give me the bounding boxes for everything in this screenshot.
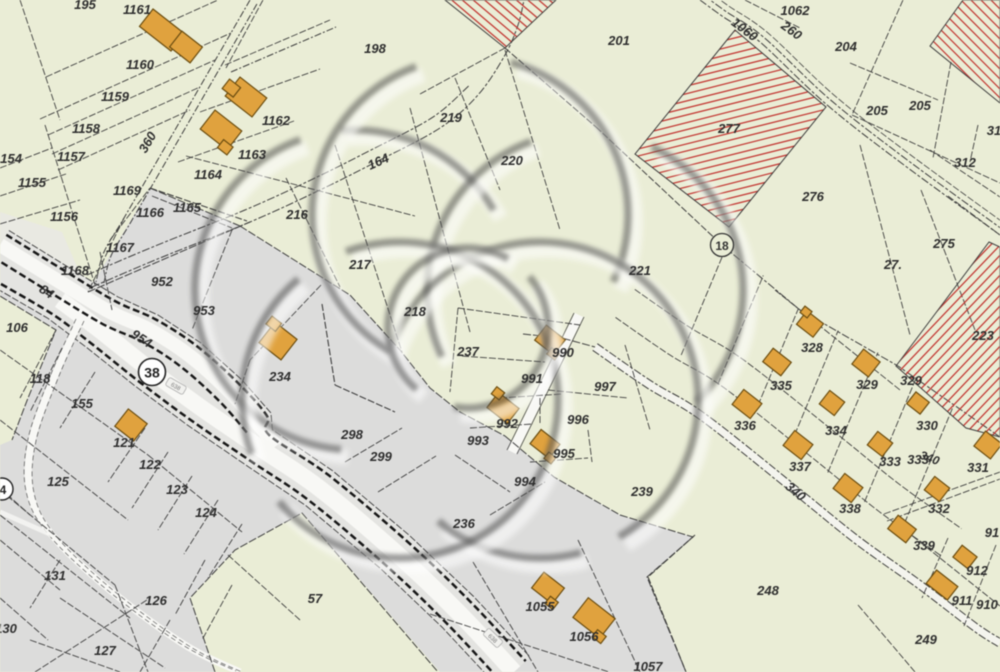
svg-text:1155: 1155	[18, 175, 47, 190]
svg-text:219: 219	[439, 110, 462, 125]
svg-text:990: 990	[552, 345, 574, 360]
svg-text:1163: 1163	[238, 147, 267, 162]
svg-text:31: 31	[987, 123, 1000, 138]
svg-text:118: 118	[30, 371, 51, 386]
svg-text:205: 205	[865, 103, 888, 118]
svg-text:1055: 1055	[526, 599, 556, 614]
svg-text:997: 997	[594, 379, 616, 394]
svg-text:198: 198	[364, 41, 386, 56]
svg-text:1159: 1159	[101, 89, 130, 104]
svg-text:298: 298	[340, 427, 363, 442]
svg-text:218: 218	[403, 304, 426, 319]
svg-text:1166: 1166	[136, 205, 165, 220]
svg-text:336: 336	[734, 418, 756, 433]
svg-text:91: 91	[985, 525, 999, 540]
svg-text:312: 312	[954, 155, 976, 170]
svg-text:121: 121	[113, 435, 135, 450]
svg-text:339: 339	[913, 538, 935, 553]
svg-text:220: 220	[500, 153, 523, 168]
svg-text:106: 106	[6, 320, 28, 335]
svg-text:239: 239	[630, 484, 653, 499]
svg-text:335: 335	[770, 378, 792, 393]
svg-text:992: 992	[496, 416, 518, 431]
svg-text:994: 994	[514, 474, 536, 489]
svg-text:4: 4	[0, 483, 7, 497]
svg-text:330: 330	[916, 418, 938, 433]
svg-text:952: 952	[151, 274, 173, 289]
svg-text:124: 124	[195, 505, 217, 520]
svg-text:275: 275	[932, 236, 955, 251]
svg-text:125: 125	[47, 474, 69, 489]
svg-text:331: 331	[967, 460, 989, 475]
svg-text:221: 221	[628, 263, 651, 278]
svg-text:334: 334	[825, 423, 847, 438]
svg-text:996: 996	[567, 412, 589, 427]
svg-text:995: 995	[553, 446, 575, 461]
svg-text:126: 126	[145, 593, 167, 608]
svg-text:991: 991	[521, 371, 543, 386]
svg-text:234: 234	[268, 369, 291, 384]
svg-text:911: 911	[952, 593, 973, 608]
svg-text:1158: 1158	[72, 121, 101, 136]
svg-text:249: 249	[914, 632, 937, 647]
svg-text:131: 131	[44, 568, 66, 583]
svg-text:122: 122	[139, 457, 161, 472]
svg-text:328: 328	[801, 340, 823, 355]
svg-text:27.: 27.	[883, 257, 902, 272]
svg-text:333: 333	[879, 454, 901, 469]
svg-text:276: 276	[801, 189, 824, 204]
svg-text:1169: 1169	[113, 183, 142, 198]
svg-text:993: 993	[467, 433, 489, 448]
svg-text:57: 57	[308, 591, 323, 606]
svg-text:953: 953	[193, 303, 215, 318]
svg-text:237: 237	[456, 344, 479, 359]
svg-text:337: 337	[789, 459, 811, 474]
svg-text:277: 277	[717, 121, 740, 136]
svg-text:38: 38	[144, 365, 160, 381]
svg-text:1157: 1157	[57, 149, 86, 164]
svg-text:299: 299	[369, 449, 392, 464]
svg-text:1057: 1057	[634, 659, 664, 672]
svg-text:205: 205	[908, 98, 931, 113]
svg-text:1162: 1162	[262, 113, 291, 128]
svg-text:912: 912	[966, 563, 988, 578]
svg-text:329: 329	[900, 373, 922, 388]
svg-text:217: 217	[348, 257, 371, 272]
svg-text:1154: 1154	[0, 151, 23, 166]
svg-text:18: 18	[715, 239, 729, 253]
svg-text:123: 123	[166, 482, 188, 497]
svg-text:201: 201	[607, 33, 630, 48]
svg-text:910: 910	[976, 597, 998, 612]
svg-text:329: 329	[856, 377, 878, 392]
svg-text:1168: 1168	[61, 263, 90, 278]
svg-text:204: 204	[834, 39, 857, 54]
svg-text:1164: 1164	[194, 167, 223, 182]
svg-text:223: 223	[971, 328, 994, 343]
svg-text:332: 332	[928, 501, 950, 516]
svg-text:216: 216	[285, 207, 308, 222]
svg-text:1062: 1062	[781, 3, 811, 18]
svg-text:1056: 1056	[570, 629, 600, 644]
svg-text:338: 338	[839, 501, 861, 516]
svg-text:1161: 1161	[123, 2, 151, 17]
svg-text:1156: 1156	[50, 209, 79, 224]
svg-text:195: 195	[74, 0, 96, 12]
svg-text:1165: 1165	[173, 200, 202, 215]
svg-text:248: 248	[756, 583, 779, 598]
svg-text:155: 155	[71, 396, 93, 411]
svg-text:236: 236	[452, 516, 475, 531]
svg-text:1167: 1167	[106, 240, 135, 255]
svg-text:1160: 1160	[126, 57, 155, 72]
svg-text:130: 130	[0, 621, 18, 636]
svg-text:127: 127	[94, 643, 116, 658]
